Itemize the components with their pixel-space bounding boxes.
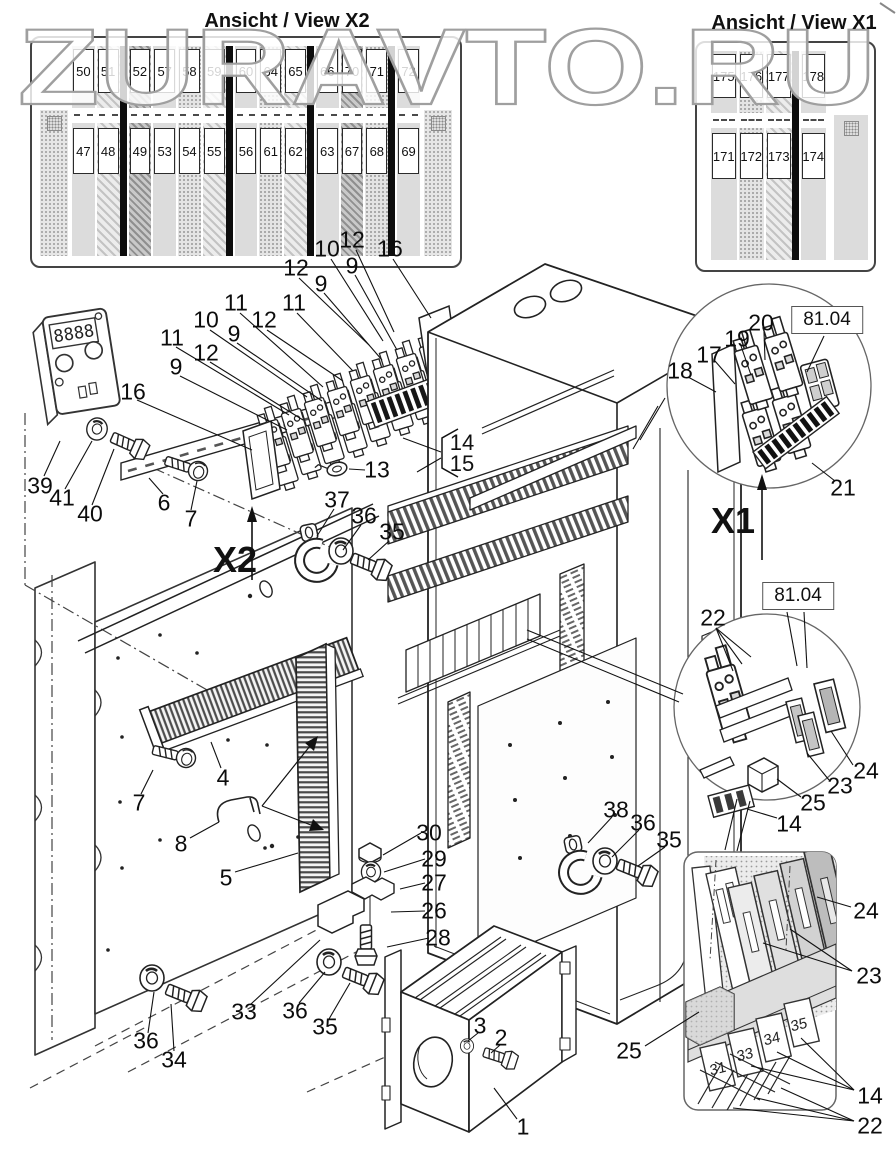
part-number-callout: 12 [339, 227, 365, 254]
part-number-callout: 34 [161, 1047, 187, 1074]
part-number-callout: 10 [193, 307, 219, 334]
part-number-callout: 29 [421, 846, 447, 873]
display-device: 8888 [31, 308, 122, 424]
part-number-callout: 7 [185, 506, 198, 533]
part-number-callout: 11 [160, 325, 184, 352]
part-number-callout: 18 [667, 358, 693, 385]
part-number-callout: 28 [425, 925, 451, 952]
bracket-label-15: 15 [450, 451, 474, 477]
part-number-callout: 41 [49, 485, 75, 512]
part-number-callout: 36 [630, 810, 656, 837]
part-number-callout: 10 [314, 236, 340, 263]
part-number-callout: 14 [857, 1083, 883, 1110]
part-number-callout: 33 [231, 999, 257, 1026]
vent-slots [448, 692, 470, 848]
part-number-callout: 12 [251, 307, 277, 334]
part-number-callout: 23 [856, 963, 882, 990]
part-number-callout: 24 [853, 898, 879, 925]
part-number-callout: 17 [696, 342, 722, 369]
part-number-callout: 13 [364, 457, 390, 484]
part-number-callout: 9 [346, 253, 359, 280]
part-number-callout: 2 [495, 1025, 508, 1052]
part-number-callout: 37 [324, 487, 350, 514]
part-number-callout: 7 [133, 790, 146, 817]
x1-section-marker: X1 [711, 500, 755, 542]
part-number-callout: 25 [616, 1038, 642, 1065]
view-x1-title: Ansicht / View X1 [711, 12, 876, 35]
part-number-callout: 3 [474, 1013, 487, 1040]
ref-drawing-box: 81.04 [791, 306, 863, 334]
x2-section-marker: X2 [213, 539, 257, 581]
part-number-callout: 22 [857, 1113, 883, 1140]
part-number-callout: 36 [282, 998, 308, 1025]
part-number-callout: 11 [282, 290, 306, 317]
part-number-callout: 12 [193, 340, 219, 367]
part-number-callout: 26 [421, 898, 447, 925]
part-number-callout: 11 [224, 290, 248, 317]
part-number-callout: 16 [120, 379, 146, 406]
part-number-callout: 36 [351, 503, 377, 530]
part-number-callout: 9 [170, 354, 183, 381]
part-number-callout: 20 [748, 310, 774, 337]
part-number-callout: 35 [312, 1014, 338, 1041]
part-number-callout: 12 [283, 255, 309, 282]
connector-cube-25 [748, 758, 778, 792]
part-number-callout: 5 [220, 865, 233, 892]
part-number-callout: 22 [700, 605, 726, 632]
cable-duct-vertical [296, 644, 339, 892]
part-number-callout: 35 [656, 827, 682, 854]
part-number-callout: 38 [603, 797, 629, 824]
part-number-callout: 16 [377, 236, 403, 263]
ref-drawing-box: 81.04 [762, 582, 834, 610]
part-number-callout: 30 [416, 820, 442, 847]
part-number-callout: 24 [853, 758, 879, 785]
x1-arrow [757, 474, 767, 560]
nut-30 [359, 843, 381, 863]
part-number-callout: 1 [517, 1114, 530, 1141]
part-number-callout: 36 [133, 1028, 159, 1055]
part-number-callout: 19 [724, 326, 750, 353]
part-number-callout: 27 [421, 870, 447, 897]
view-x2-title: Ansicht / View X2 [204, 10, 369, 33]
diagram-line-art: 8888 [0, 0, 896, 1151]
part-number-callout: 4 [217, 765, 230, 792]
part-number-callout: 8 [175, 831, 188, 858]
parts-diagram-page: 50 47 51 48 52 49 57 53 [0, 0, 896, 1151]
part-number-callout: 25 [800, 790, 826, 817]
part-number-callout: 21 [830, 475, 856, 502]
part-number-callout: 9 [228, 321, 241, 348]
part-number-callout: 9 [315, 271, 328, 298]
part-number-callout: 14 [776, 811, 802, 838]
part-number-callout: 35 [379, 519, 405, 546]
part-number-callout: 6 [158, 490, 171, 517]
part-number-callout: 23 [827, 773, 853, 800]
part-number-callout: 40 [77, 501, 103, 528]
